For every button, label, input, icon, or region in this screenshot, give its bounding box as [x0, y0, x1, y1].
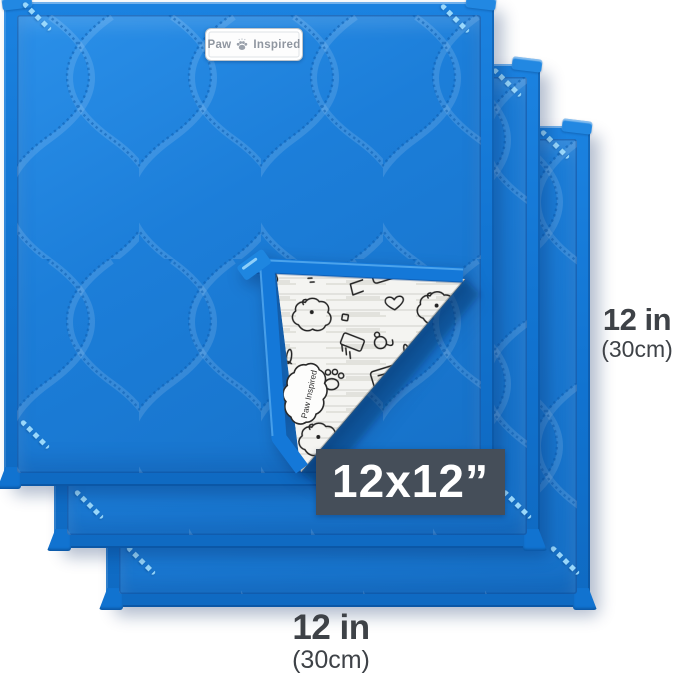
dimension-label-right: 12 in (30cm) [594, 304, 679, 362]
brand-tag: Paw Inspired [205, 28, 303, 61]
brand-word-left: Paw [207, 39, 231, 51]
brand-word-right: Inspired [253, 39, 300, 51]
binding-lip-icon [561, 118, 592, 135]
binding-lip-icon [511, 56, 542, 73]
paw-icon [235, 38, 249, 52]
dimension-label-bottom: 12 in (30cm) [251, 610, 411, 673]
dimension-bottom-inches: 12 in [251, 610, 411, 646]
dimension-right-metric: (30cm) [594, 338, 679, 362]
dimension-bottom-metric: (30cm) [251, 647, 411, 673]
size-badge: 12x12” [316, 449, 505, 515]
dimension-right-inches: 12 in [594, 304, 679, 336]
product-image-canvas: Paw Inspired Paw Inspired [0, 0, 679, 675]
binding-lip-icon [465, 0, 496, 11]
size-badge-text: 12x12” [332, 454, 489, 511]
